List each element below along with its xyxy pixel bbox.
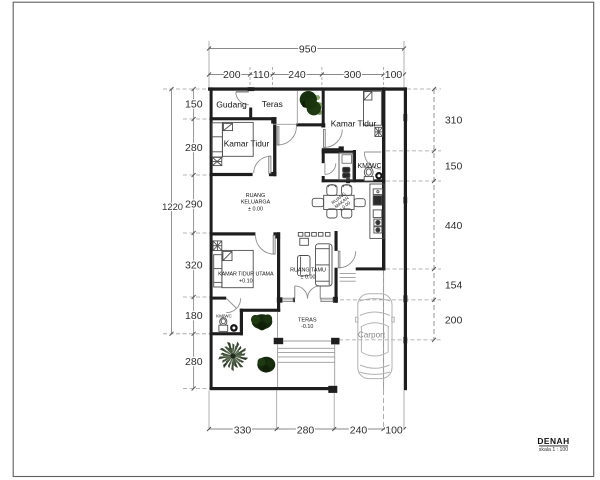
svg-text:440: 440 [445, 220, 463, 232]
svg-text:330: 330 [234, 425, 252, 437]
svg-text:100: 100 [385, 425, 403, 437]
svg-text:± 0.00: ± 0.00 [248, 206, 263, 212]
svg-text:1220: 1220 [162, 201, 183, 212]
svg-text:310: 310 [445, 115, 463, 127]
svg-text:200: 200 [445, 315, 463, 327]
svg-text:Carport: Carport [358, 330, 386, 339]
svg-text:Teras: Teras [262, 99, 283, 109]
svg-text:DENAH: DENAH [537, 436, 569, 446]
svg-text:110: 110 [253, 69, 270, 81]
svg-text:150: 150 [445, 161, 463, 173]
svg-text:Kamar Tidur: Kamar Tidur [224, 138, 270, 148]
svg-text:100: 100 [385, 69, 403, 81]
svg-text:280: 280 [185, 142, 203, 154]
svg-text:280: 280 [297, 425, 315, 437]
svg-text:± 0.00: ± 0.00 [301, 274, 316, 280]
svg-text:-0.10: -0.10 [301, 324, 313, 330]
svg-text:+0.10: +0.10 [239, 278, 253, 284]
svg-text:320: 320 [185, 260, 203, 272]
svg-text:KM/WC: KM/WC [216, 314, 232, 319]
svg-text:KELUARGA: KELUARGA [241, 200, 271, 206]
svg-text:950: 950 [299, 43, 317, 55]
svg-text:290: 290 [185, 199, 203, 211]
svg-text:KM/WC: KM/WC [357, 163, 381, 170]
svg-text:RUANG: RUANG [246, 193, 265, 199]
svg-text:180: 180 [185, 310, 203, 322]
svg-text:240: 240 [288, 69, 306, 81]
svg-text:KAMAR TIDUR UTAMA: KAMAR TIDUR UTAMA [218, 271, 274, 277]
svg-text:Kamar Tidur: Kamar Tidur [331, 118, 377, 128]
svg-text:200: 200 [223, 69, 241, 81]
svg-text:240: 240 [350, 425, 368, 437]
svg-text:RUANG TAMU: RUANG TAMU [290, 267, 326, 273]
svg-text:skala 1 : 100: skala 1 : 100 [539, 447, 569, 453]
svg-text:154: 154 [445, 279, 463, 291]
svg-text:150: 150 [185, 99, 203, 111]
svg-text:TERAS: TERAS [298, 318, 317, 324]
svg-text:300: 300 [344, 69, 362, 81]
svg-text:280: 280 [185, 356, 203, 368]
svg-text:Gudang: Gudang [216, 100, 247, 110]
